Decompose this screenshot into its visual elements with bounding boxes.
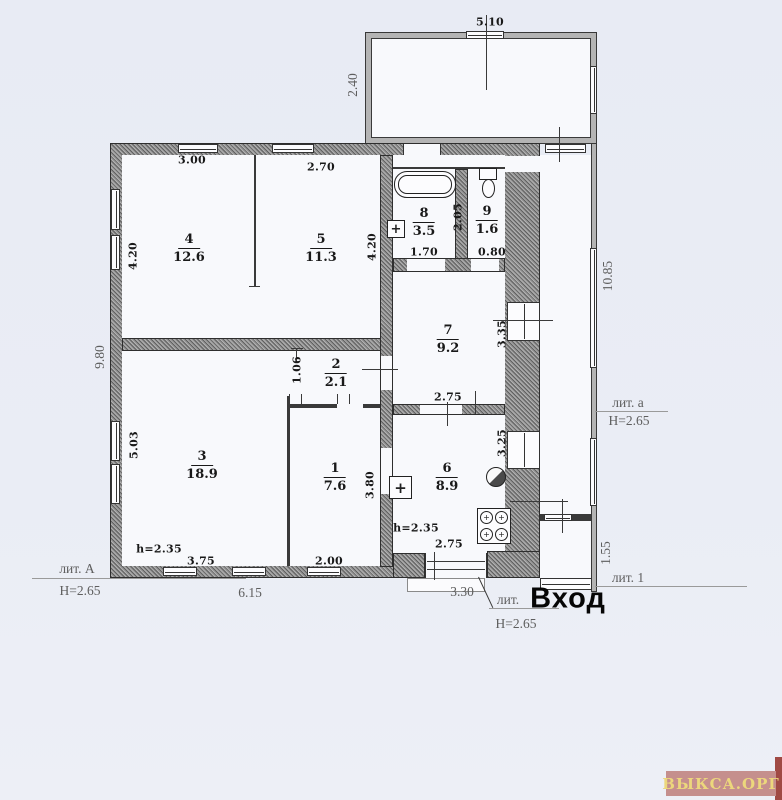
ceiling-height-right: h=2.35 bbox=[393, 522, 439, 535]
room-7-label: 7 9.2 bbox=[437, 320, 460, 356]
main-house-interior bbox=[122, 155, 505, 566]
height-entry-label: Н=2.65 bbox=[496, 616, 537, 632]
leader-line bbox=[32, 578, 246, 579]
window bbox=[272, 144, 314, 153]
room-9-label: 9 1.6 bbox=[476, 201, 499, 237]
wall-block bbox=[487, 551, 540, 578]
dim-r3-height: 5.03 bbox=[128, 431, 141, 459]
dim-line bbox=[447, 402, 448, 426]
room-number: 9 bbox=[476, 204, 498, 221]
door-jamb-tick bbox=[289, 394, 290, 404]
door-opening bbox=[407, 259, 445, 271]
dim-porch-height: 1.55 bbox=[598, 541, 614, 565]
door-line bbox=[427, 569, 485, 570]
wall-end-tick bbox=[249, 286, 260, 287]
room-number: 4 bbox=[178, 232, 200, 249]
window bbox=[111, 421, 120, 461]
dim-r5-height: 4.20 bbox=[366, 233, 379, 261]
door-opening bbox=[403, 144, 441, 155]
room-area: 12.6 bbox=[173, 249, 205, 265]
height-A-label: Н=2.65 bbox=[60, 583, 101, 599]
door-opening bbox=[420, 405, 462, 414]
dim-r1-width: 2.00 bbox=[315, 555, 343, 568]
dim-entry-width: 3.30 bbox=[450, 584, 474, 600]
dim-r6-height: 3.25 bbox=[496, 429, 509, 457]
room-area: 1.6 bbox=[476, 221, 499, 237]
window bbox=[590, 438, 597, 506]
room-area: 3.5 bbox=[413, 223, 436, 239]
room-number: 6 bbox=[436, 461, 458, 478]
floor-plan-canvas: + + + + + + 4 12.6 5 11.3 8 3.5 9 1.6 7 bbox=[0, 0, 782, 800]
dim-line bbox=[434, 552, 435, 580]
room-6-label: 6 8.9 bbox=[436, 458, 459, 494]
boiler-icon bbox=[486, 467, 506, 487]
dim-r7-height: 3.35 bbox=[496, 320, 509, 348]
room-8-label: 8 3.5 bbox=[413, 203, 436, 239]
furnace-icon: + bbox=[389, 476, 412, 499]
window bbox=[178, 144, 218, 153]
interior-wall bbox=[122, 338, 393, 351]
dim-r2-door: 1.06 bbox=[291, 356, 304, 384]
partition-wall bbox=[254, 155, 256, 287]
room-area: 18.9 bbox=[186, 466, 218, 482]
window bbox=[544, 514, 572, 521]
gas-stove-icon: + + + + bbox=[477, 508, 511, 544]
room-number: 2 bbox=[325, 357, 347, 374]
leader-line bbox=[478, 577, 493, 608]
window bbox=[111, 235, 120, 270]
room-number: 7 bbox=[437, 323, 459, 340]
height-a-label: Н=2.65 bbox=[609, 413, 650, 429]
door-opening bbox=[381, 356, 392, 390]
dim-r7-width: 2.75 bbox=[434, 391, 462, 404]
dim-line bbox=[559, 127, 560, 162]
door-opening bbox=[471, 259, 499, 271]
dim-right-height: 10.85 bbox=[600, 261, 616, 291]
window bbox=[307, 567, 341, 576]
dim-r9-width: 0.80 bbox=[478, 246, 506, 259]
toilet-bowl-icon bbox=[482, 179, 495, 198]
room-area: 2.1 bbox=[325, 374, 348, 390]
dim-line bbox=[510, 501, 568, 502]
dim-r6-width: 2.75 bbox=[435, 538, 463, 551]
window bbox=[232, 567, 266, 576]
top-veranda-interior bbox=[371, 38, 591, 138]
partition-wall bbox=[290, 404, 380, 408]
dim-r4-height: 4.20 bbox=[127, 242, 140, 270]
window bbox=[111, 189, 120, 230]
side-veranda-interior bbox=[540, 155, 591, 515]
room-number: 8 bbox=[413, 206, 435, 223]
door-jamb-tick bbox=[337, 394, 338, 404]
dim-r5-width: 2.70 bbox=[307, 161, 335, 174]
dim-line bbox=[291, 348, 303, 349]
room-number: 3 bbox=[191, 449, 213, 466]
window bbox=[590, 248, 597, 368]
leader-line bbox=[595, 586, 747, 587]
door-opening bbox=[337, 403, 363, 409]
wall-block bbox=[393, 553, 425, 578]
room-2-label: 2 2.1 bbox=[325, 354, 348, 390]
furnace-icon: + bbox=[387, 220, 405, 238]
dim-r8-width: 1.70 bbox=[410, 246, 438, 259]
dim-line bbox=[562, 499, 563, 533]
dim-bottom-total: 6.15 bbox=[238, 585, 262, 601]
room-1-label: 1 7.6 bbox=[324, 458, 347, 494]
lit-A-label: лит. А bbox=[59, 561, 94, 577]
dim-line bbox=[475, 391, 476, 414]
watermark: ВЫКСА.ОРГ bbox=[666, 771, 776, 796]
leader-line bbox=[595, 411, 668, 412]
bathtub-icon bbox=[394, 171, 456, 198]
porch-interior bbox=[540, 521, 591, 578]
room-4-label: 4 12.6 bbox=[173, 229, 205, 265]
window bbox=[545, 144, 586, 153]
dim-left-height: 9.80 bbox=[92, 345, 108, 369]
door-line bbox=[427, 561, 485, 562]
dim-r1-height: 3.80 bbox=[364, 471, 377, 499]
dim-line bbox=[362, 369, 398, 370]
door-opening bbox=[505, 156, 540, 172]
window bbox=[507, 302, 540, 341]
ceiling-height-left: h=2.35 bbox=[136, 543, 182, 556]
room-number: 1 bbox=[324, 461, 346, 478]
window bbox=[111, 464, 120, 504]
dim-r4-width: 3.00 bbox=[178, 154, 206, 167]
door-jamb-tick bbox=[349, 394, 350, 404]
room-5-label: 5 11.3 bbox=[305, 229, 337, 265]
dim-r8-height: 2.05 bbox=[452, 203, 465, 231]
door-opening bbox=[507, 431, 540, 469]
room-number: 5 bbox=[310, 232, 332, 249]
room-area: 11.3 bbox=[305, 249, 337, 265]
lit-1-label: лит. 1 bbox=[612, 570, 644, 586]
partition-wall bbox=[287, 396, 290, 566]
lit-entry-label: лит. bbox=[497, 592, 519, 608]
window bbox=[590, 66, 597, 114]
watermark-text: ВЫКСА.ОРГ bbox=[662, 775, 779, 793]
dim-top-width: 5.10 bbox=[476, 16, 504, 29]
door-jamb-tick bbox=[301, 394, 302, 404]
window bbox=[163, 567, 197, 576]
room-area: 8.9 bbox=[436, 478, 459, 494]
dim-top-depth: 2.40 bbox=[345, 73, 361, 97]
dim-r3-width: 3.75 bbox=[187, 555, 215, 568]
room-area: 7.6 bbox=[324, 478, 347, 494]
entrance-label: Вход bbox=[530, 583, 606, 616]
lit-a-label: лит. а bbox=[612, 395, 644, 411]
room-area: 9.2 bbox=[437, 340, 460, 356]
room-3-label: 3 18.9 bbox=[186, 446, 218, 482]
window bbox=[466, 31, 504, 39]
